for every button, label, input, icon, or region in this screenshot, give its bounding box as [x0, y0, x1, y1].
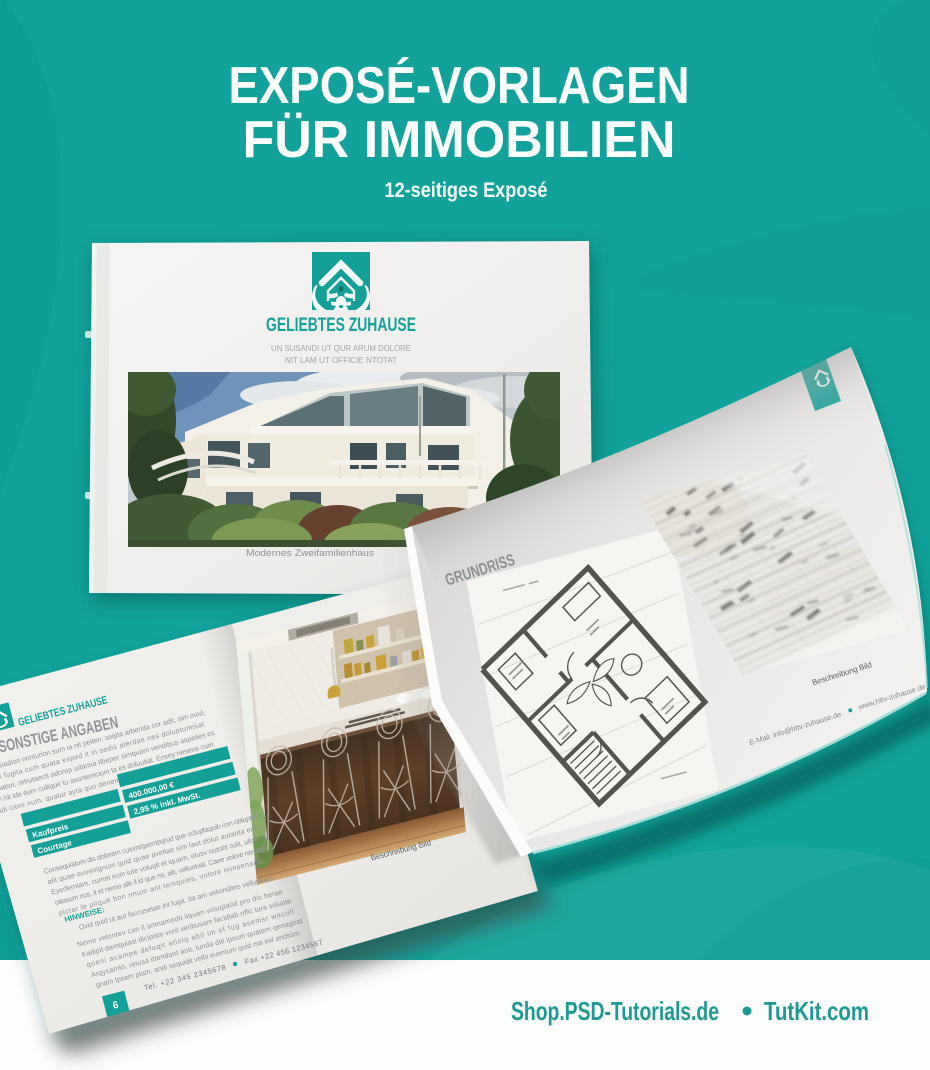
svg-text:Modernes Zweifamilienhaus: Modernes Zweifamilienhaus	[246, 548, 375, 558]
svg-text:EXPOSÉ-VORLAGEN: EXPOSÉ-VORLAGEN	[229, 57, 690, 115]
svg-text:Shop.PSD-Tutorials.de: Shop.PSD-Tutorials.de	[511, 996, 719, 1026]
svg-text:TutKit.com: TutKit.com	[764, 996, 869, 1026]
svg-text:12-seitiges Exposé: 12-seitiges Exposé	[385, 179, 548, 202]
svg-text:NIT LAM UT OFFICIE NTOTAT: NIT LAM UT OFFICIE NTOTAT	[285, 355, 397, 365]
svg-text:GELIEBTES ZUHAUSE: GELIEBTES ZUHAUSE	[266, 315, 416, 336]
svg-text:UN SUSANDI UT QUR ARUM DOLORE: UN SUSANDI UT QUR ARUM DOLORE	[271, 343, 411, 353]
svg-text:FÜR IMMOBILIEN: FÜR IMMOBILIEN	[243, 111, 676, 169]
